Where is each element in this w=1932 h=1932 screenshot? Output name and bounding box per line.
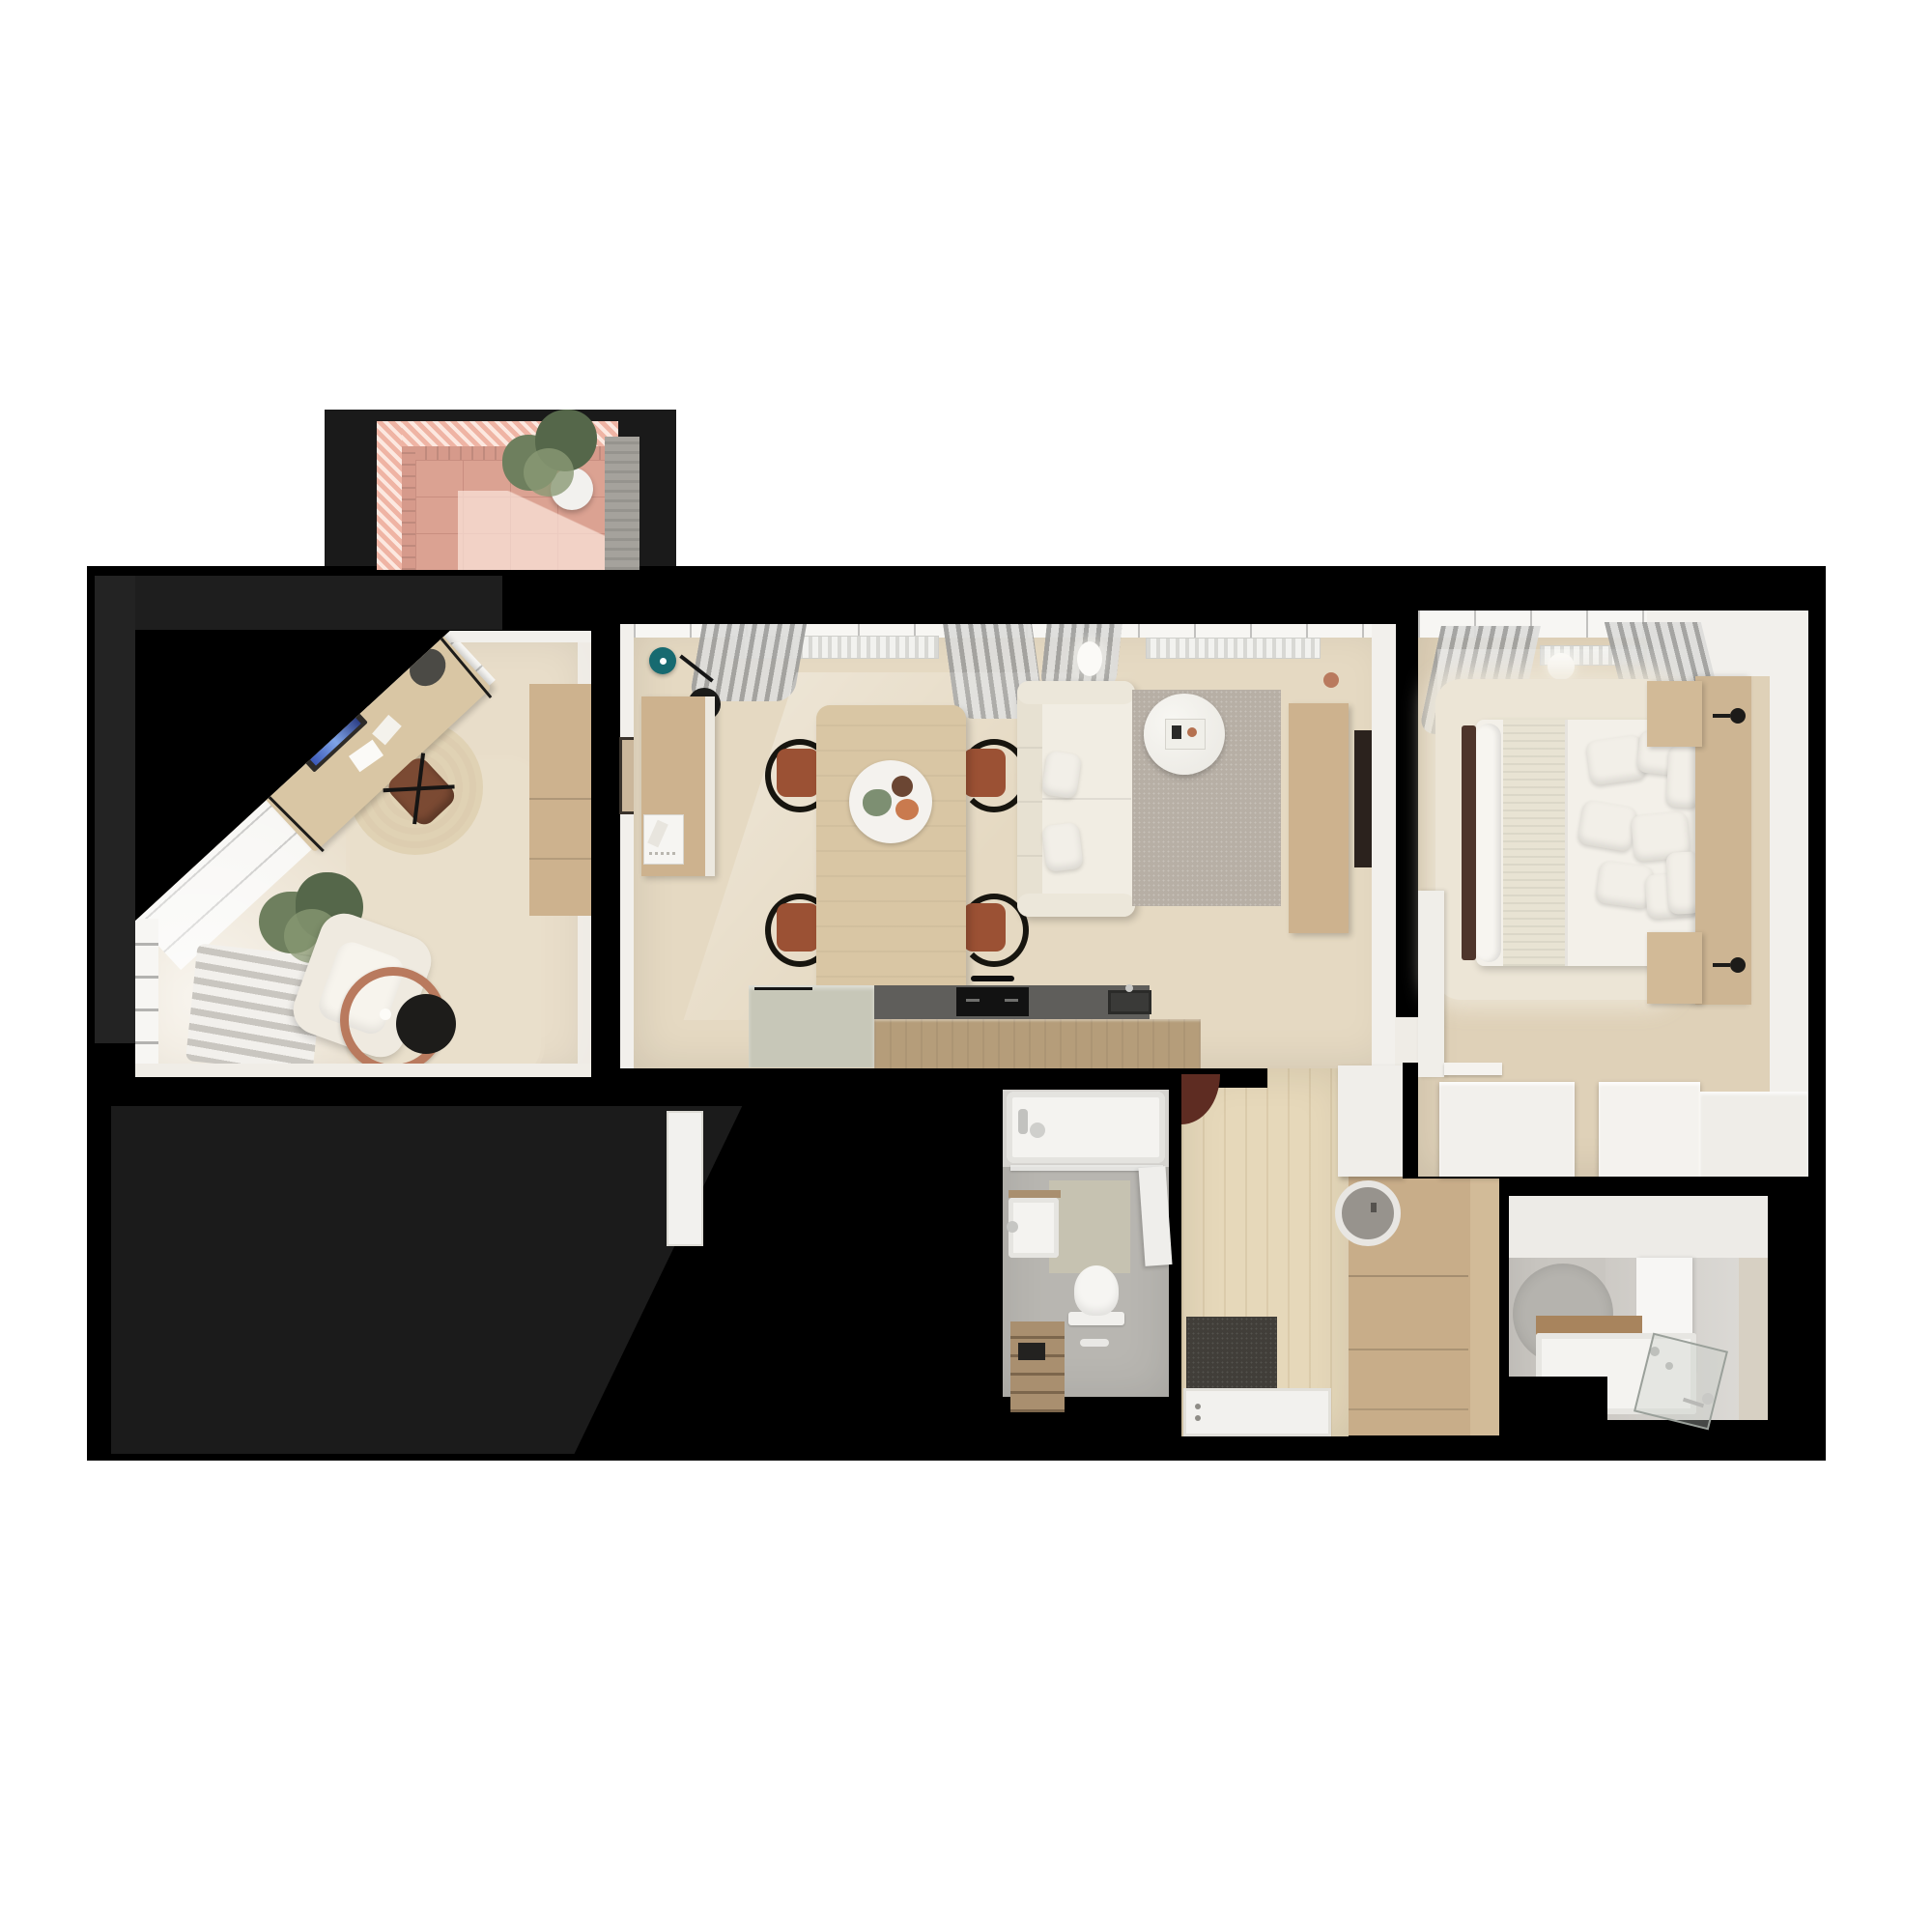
office-wardrobe xyxy=(529,684,591,916)
wall-sconce-icon xyxy=(1713,956,1746,974)
open-red-door-icon xyxy=(1181,1074,1220,1124)
bedroom-dresser xyxy=(1439,1082,1575,1177)
hall-white-cabinet xyxy=(1338,1065,1403,1177)
shower-room-right-wall xyxy=(1739,1258,1768,1420)
tub-faucet-icon xyxy=(1018,1109,1051,1138)
nightstand-bottom xyxy=(1647,932,1702,1004)
balcony xyxy=(342,413,659,570)
bed-duvet-roll xyxy=(1476,724,1501,962)
room-living-dining-kitchen xyxy=(634,624,1395,1068)
wardrobe-seam xyxy=(1349,1408,1468,1410)
bed-knit-throw xyxy=(1503,720,1565,966)
sofa-pillow xyxy=(1041,822,1084,872)
living-left-wall xyxy=(620,624,634,1068)
balcony-plant-icon xyxy=(497,410,603,502)
floor-drain xyxy=(1080,1339,1109,1347)
room-bathroom-shower xyxy=(1509,1196,1768,1420)
mask-shadow-top xyxy=(135,576,502,630)
bedroom-dresser xyxy=(1599,1082,1700,1177)
washing-machine-porthole-icon xyxy=(1335,1180,1401,1246)
wc-wood-shelf-unit xyxy=(1010,1321,1065,1412)
toilet-icon xyxy=(1068,1265,1124,1329)
mask-shadow-left xyxy=(95,576,135,1043)
bedroom-door-threshold xyxy=(1395,1017,1418,1065)
bed-headboard xyxy=(1695,676,1751,1005)
bedroom-wall-shelf xyxy=(1444,1063,1502,1075)
wc-washbasin xyxy=(1009,1198,1059,1258)
bedroom-lower-wall xyxy=(1403,1063,1418,1179)
living-tall-cabinet xyxy=(641,696,715,876)
cabinet-appliance-icon xyxy=(643,814,684,865)
kitchen-sink xyxy=(1108,990,1151,1014)
wardrobe-seam xyxy=(1349,1275,1468,1277)
living-right-wall xyxy=(1372,624,1396,1068)
office-top-wall xyxy=(450,631,591,642)
office-bottom-wall xyxy=(135,1064,591,1077)
office-side-table xyxy=(396,994,456,1054)
room-bathroom-wc xyxy=(1003,1090,1169,1397)
living-radiator-right xyxy=(1146,638,1321,659)
shower-room-notch xyxy=(1509,1377,1607,1420)
bathtub xyxy=(1007,1092,1165,1163)
copper-vase-icon xyxy=(1323,672,1339,688)
cooktop-handle xyxy=(971,976,1014,981)
bedroom-white-wardrobe xyxy=(1418,891,1444,1077)
doormat xyxy=(1186,1317,1277,1388)
wardrobe-seam xyxy=(1349,1349,1468,1350)
tv-cabinet xyxy=(1289,703,1349,933)
wardrobe-side-strip xyxy=(1470,1179,1499,1435)
wall-sconce-icon xyxy=(1713,707,1746,724)
bedroom-ceiling-lamp-icon xyxy=(1548,653,1575,680)
sofa-pillow xyxy=(1041,751,1082,800)
sofa xyxy=(1017,681,1135,917)
office-left-windows xyxy=(135,919,158,1077)
bed-footboard xyxy=(1462,725,1476,960)
desk-paper xyxy=(349,740,384,773)
balcony-brick-left xyxy=(402,446,415,570)
entry-door-panel xyxy=(1183,1388,1331,1436)
balcony-stripe-left xyxy=(377,421,402,570)
bed-pillow xyxy=(1577,799,1637,852)
nightstand-top xyxy=(1647,681,1702,747)
wall-tv-icon xyxy=(1354,730,1372,867)
room-hallway xyxy=(1181,1068,1349,1436)
white-pendant-lamp-icon xyxy=(1077,641,1102,676)
floorplan-canvas xyxy=(0,0,1932,1932)
shower-room-top-wall xyxy=(1509,1196,1768,1258)
hand-shower-icon xyxy=(1683,1391,1716,1414)
bathroom-door-leaf xyxy=(667,1111,703,1246)
round-coffee-table xyxy=(1144,694,1225,775)
wc-bath-mat xyxy=(1049,1180,1130,1273)
wc-wood-strip xyxy=(1009,1190,1061,1198)
room-bedroom xyxy=(1418,611,1808,1177)
cooktop-icon xyxy=(956,987,1029,1016)
wc-wall-ledge xyxy=(1138,1166,1172,1266)
balcony-concrete-wall xyxy=(605,437,639,570)
table-centerpiece-icon xyxy=(849,760,932,843)
desk-paper xyxy=(372,715,402,745)
bedroom-dresser xyxy=(1700,1092,1808,1177)
kitchen-island xyxy=(749,985,874,1067)
kitchen-counter-front xyxy=(874,1019,1201,1068)
